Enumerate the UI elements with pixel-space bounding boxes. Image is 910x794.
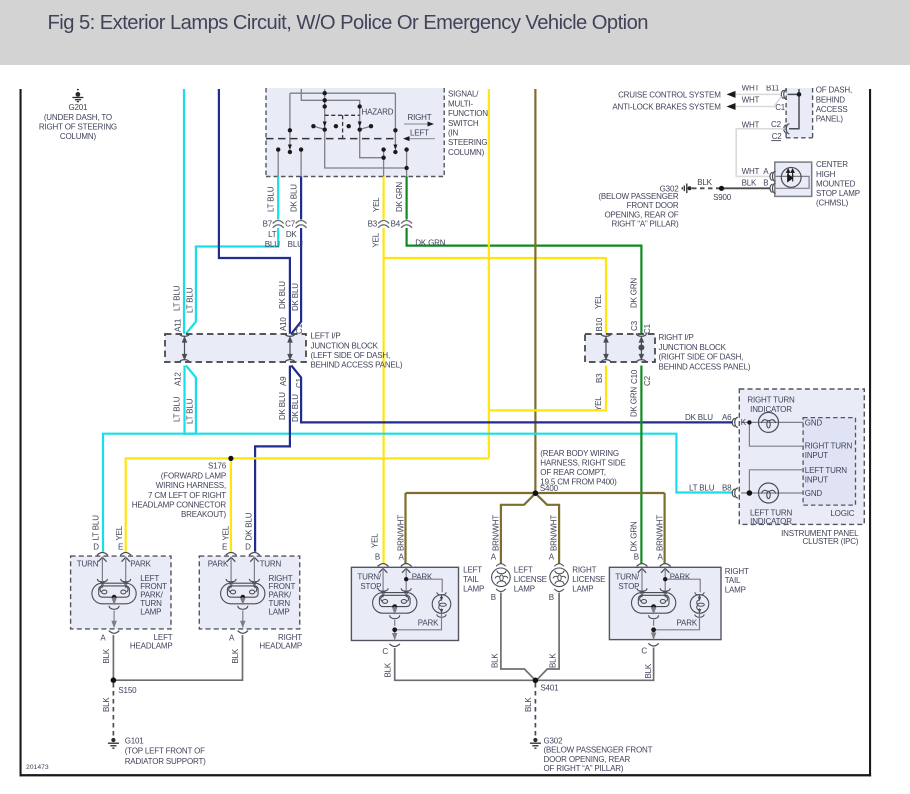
svg-text:(FORWARD LAMP: (FORWARD LAMP bbox=[161, 471, 226, 480]
svg-text:RIGHT OF STEERING: RIGHT OF STEERING bbox=[39, 122, 117, 131]
svg-text:(LEFT SIDE OF DASH,: (LEFT SIDE OF DASH, bbox=[311, 351, 391, 360]
svg-text:C1: C1 bbox=[643, 323, 652, 334]
svg-text:LT BLU: LT BLU bbox=[267, 186, 276, 212]
svg-text:STOP LAMP: STOP LAMP bbox=[816, 189, 860, 198]
svg-text:BLK: BLK bbox=[102, 697, 111, 712]
svg-text:S401: S401 bbox=[540, 683, 559, 692]
svg-text:DK BLU: DK BLU bbox=[291, 394, 300, 422]
svg-text:OF RIGHT “A” PILLAR): OF RIGHT “A” PILLAR) bbox=[544, 764, 624, 773]
svg-text:S900: S900 bbox=[713, 193, 732, 202]
svg-text:BLK: BLK bbox=[102, 648, 111, 663]
svg-text:TURN/: TURN/ bbox=[357, 572, 381, 581]
svg-text:OF DASH,: OF DASH, bbox=[816, 86, 852, 95]
svg-text:A12: A12 bbox=[173, 372, 182, 386]
svg-text:E: E bbox=[222, 542, 227, 551]
svg-text:BLK: BLK bbox=[384, 662, 393, 677]
svg-text:C7: C7 bbox=[285, 220, 296, 229]
svg-text:C2: C2 bbox=[771, 120, 782, 129]
svg-text:PANEL): PANEL) bbox=[816, 115, 844, 124]
svg-text:A: A bbox=[763, 167, 769, 176]
svg-text:FUNCTION: FUNCTION bbox=[448, 109, 488, 118]
svg-text:HEADLAMP: HEADLAMP bbox=[259, 642, 302, 651]
svg-text:LEFT TURN: LEFT TURN bbox=[805, 466, 847, 475]
svg-text:(IN: (IN bbox=[448, 129, 459, 138]
svg-text:PARK: PARK bbox=[208, 559, 229, 568]
svg-text:B: B bbox=[634, 552, 639, 561]
svg-text:LICENSE: LICENSE bbox=[514, 575, 547, 584]
svg-text:DK BLU: DK BLU bbox=[291, 283, 300, 311]
svg-text:A: A bbox=[100, 633, 106, 642]
svg-text:BEHIND ACCESS PANEL): BEHIND ACCESS PANEL) bbox=[311, 361, 403, 370]
svg-text:HAZARD: HAZARD bbox=[362, 107, 394, 116]
svg-text:GND: GND bbox=[805, 489, 823, 498]
svg-text:B3: B3 bbox=[595, 373, 604, 383]
svg-text:A10: A10 bbox=[279, 317, 288, 331]
svg-text:INPUT: INPUT bbox=[805, 475, 828, 484]
svg-text:LAMP: LAMP bbox=[572, 585, 593, 594]
svg-text:PARK: PARK bbox=[130, 559, 151, 568]
svg-text:ACCESS: ACCESS bbox=[816, 105, 848, 114]
svg-text:B4: B4 bbox=[391, 220, 401, 229]
svg-text:B7: B7 bbox=[263, 220, 273, 229]
svg-text:LT: LT bbox=[268, 230, 277, 239]
svg-text:HEADLAMP CONNECTOR: HEADLAMP CONNECTOR bbox=[132, 501, 227, 510]
svg-text:BEHIND: BEHIND bbox=[816, 95, 846, 104]
svg-text:HEADLAMP: HEADLAMP bbox=[130, 642, 173, 651]
svg-text:MOUNTED: MOUNTED bbox=[816, 179, 856, 188]
svg-text:YEL: YEL bbox=[594, 396, 603, 411]
svg-text:C1: C1 bbox=[295, 377, 304, 388]
svg-text:WHT: WHT bbox=[742, 167, 760, 176]
svg-text:YEL: YEL bbox=[221, 525, 230, 540]
svg-text:LICENSE: LICENSE bbox=[572, 575, 605, 584]
svg-text:PARK: PARK bbox=[412, 572, 433, 581]
svg-text:JUNCTION BLOCK: JUNCTION BLOCK bbox=[659, 343, 727, 352]
svg-text:LEFT: LEFT bbox=[514, 566, 533, 575]
svg-text:PARK: PARK bbox=[677, 619, 698, 628]
svg-text:DK BLU: DK BLU bbox=[244, 512, 253, 540]
svg-text:RIGHT: RIGHT bbox=[408, 113, 432, 122]
svg-text:DK BLU: DK BLU bbox=[290, 184, 299, 212]
svg-text:RIGHT: RIGHT bbox=[572, 566, 596, 575]
svg-text:RADIATOR SUPPORT): RADIATOR SUPPORT) bbox=[125, 757, 206, 766]
svg-text:A: A bbox=[491, 552, 497, 561]
svg-text:YEL: YEL bbox=[594, 294, 603, 309]
svg-text:C1: C1 bbox=[775, 103, 786, 112]
svg-text:LEFT: LEFT bbox=[463, 566, 482, 575]
svg-text:S400: S400 bbox=[540, 484, 559, 493]
svg-text:BLK: BLK bbox=[697, 178, 712, 187]
svg-text:BRN/WHT: BRN/WHT bbox=[655, 515, 664, 551]
svg-text:BLK: BLK bbox=[742, 179, 757, 188]
svg-text:LT BLU: LT BLU bbox=[172, 285, 181, 311]
svg-text:RIGHT TURN: RIGHT TURN bbox=[747, 395, 795, 404]
svg-text:K: K bbox=[741, 418, 747, 427]
svg-text:WIRING HARNESS,: WIRING HARNESS, bbox=[156, 481, 226, 490]
svg-text:B: B bbox=[763, 179, 768, 188]
svg-text:TURN/: TURN/ bbox=[615, 572, 639, 581]
svg-text:OF REAR COMPT,: OF REAR COMPT, bbox=[540, 468, 605, 477]
svg-text:INPUT: INPUT bbox=[805, 451, 828, 460]
svg-text:YEL: YEL bbox=[372, 197, 381, 212]
svg-text:LAMP: LAMP bbox=[514, 585, 535, 594]
svg-text:A: A bbox=[549, 552, 555, 561]
svg-text:B10: B10 bbox=[595, 317, 604, 331]
svg-text:LT BLU: LT BLU bbox=[185, 287, 194, 313]
svg-text:COLUMN): COLUMN) bbox=[60, 132, 97, 141]
svg-text:YEL: YEL bbox=[372, 232, 381, 247]
svg-text:LT BLU: LT BLU bbox=[689, 484, 715, 493]
svg-text:A: A bbox=[398, 552, 404, 561]
svg-text:HARNESS, RIGHT SIDE: HARNESS, RIGHT SIDE bbox=[540, 459, 625, 468]
svg-text:PARK: PARK bbox=[418, 619, 439, 628]
svg-text:BLU: BLU bbox=[265, 240, 280, 249]
svg-text:WHT: WHT bbox=[742, 121, 760, 130]
svg-text:WHT: WHT bbox=[742, 96, 760, 105]
svg-text:DK GRN: DK GRN bbox=[415, 238, 445, 247]
svg-text:DOOR OPENING, REAR: DOOR OPENING, REAR bbox=[544, 755, 631, 764]
svg-text:BLK: BLK bbox=[644, 663, 653, 678]
svg-text:DK: DK bbox=[286, 230, 298, 239]
svg-text:LT BLU: LT BLU bbox=[172, 396, 181, 422]
svg-text:STEERING: STEERING bbox=[448, 138, 487, 147]
svg-text:LOGIC: LOGIC bbox=[830, 509, 854, 518]
svg-text:CRUISE CONTROL SYSTEM: CRUISE CONTROL SYSTEM bbox=[618, 90, 721, 99]
svg-text:DK GRN: DK GRN bbox=[629, 521, 638, 551]
svg-text:DK GRN: DK GRN bbox=[395, 182, 404, 212]
svg-text:RIGHT I/P: RIGHT I/P bbox=[659, 333, 694, 342]
svg-text:B: B bbox=[549, 593, 554, 602]
svg-text:BLK: BLK bbox=[491, 653, 500, 668]
svg-text:LAMP: LAMP bbox=[140, 607, 161, 616]
svg-text:PARK: PARK bbox=[670, 572, 691, 581]
svg-text:DK GRN: DK GRN bbox=[630, 278, 639, 308]
svg-text:BLK: BLK bbox=[231, 648, 240, 663]
svg-text:FRONT DOOR: FRONT DOOR bbox=[627, 201, 679, 210]
svg-text:CENTER: CENTER bbox=[816, 160, 848, 169]
svg-text:TAIL: TAIL bbox=[463, 575, 479, 584]
svg-text:A: A bbox=[229, 633, 235, 642]
svg-text:LAMP: LAMP bbox=[269, 607, 290, 616]
svg-text:LEFT: LEFT bbox=[410, 128, 429, 137]
svg-text:D: D bbox=[245, 542, 251, 551]
svg-text:B: B bbox=[491, 593, 496, 602]
svg-text:BLK: BLK bbox=[549, 653, 558, 668]
svg-text:CLUSTER (IPC): CLUSTER (IPC) bbox=[803, 537, 859, 546]
svg-text:YEL: YEL bbox=[371, 533, 380, 548]
svg-text:HIGH: HIGH bbox=[816, 170, 836, 179]
svg-text:RIGHT “A” PILLAR): RIGHT “A” PILLAR) bbox=[611, 220, 679, 229]
svg-text:(BELOW PASSENGER FRONT: (BELOW PASSENGER FRONT bbox=[544, 746, 653, 755]
svg-text:INDICATOR: INDICATOR bbox=[750, 405, 792, 414]
svg-text:SWITCH: SWITCH bbox=[448, 119, 479, 128]
svg-text:BEHIND ACCESS PANEL): BEHIND ACCESS PANEL) bbox=[659, 362, 751, 371]
svg-text:BLK: BLK bbox=[524, 697, 533, 712]
svg-text:A: A bbox=[657, 552, 663, 561]
svg-text:(UNDER DASH, TO: (UNDER DASH, TO bbox=[44, 113, 112, 122]
svg-text:S176: S176 bbox=[208, 462, 227, 471]
svg-text:SIGNAL/: SIGNAL/ bbox=[448, 90, 479, 99]
svg-text:BRN/WHT: BRN/WHT bbox=[550, 515, 559, 551]
svg-text:TAIL: TAIL bbox=[725, 576, 741, 585]
svg-text:INDICATOR: INDICATOR bbox=[750, 517, 792, 526]
svg-text:G201: G201 bbox=[68, 103, 88, 112]
svg-text:Fig 5: Exterior Lamps Circuit,: Fig 5: Exterior Lamps Circuit, W/O Polic… bbox=[48, 12, 648, 34]
svg-text:JUNCTION BLOCK: JUNCTION BLOCK bbox=[311, 341, 379, 350]
svg-text:TURN: TURN bbox=[77, 559, 99, 568]
svg-text:C: C bbox=[382, 647, 388, 656]
svg-text:C10: C10 bbox=[630, 369, 639, 384]
svg-text:LEFT I/P: LEFT I/P bbox=[311, 332, 341, 341]
svg-text:ANTI-LOCK BRAKES SYSTEM: ANTI-LOCK BRAKES SYSTEM bbox=[612, 102, 721, 111]
svg-text:DK BLU: DK BLU bbox=[685, 413, 713, 422]
svg-text:C1: C1 bbox=[295, 323, 304, 334]
svg-text:E: E bbox=[118, 542, 123, 551]
svg-text:OPENING, REAR OF: OPENING, REAR OF bbox=[604, 210, 678, 219]
svg-text:COLUMN): COLUMN) bbox=[448, 148, 485, 157]
svg-text:DK GRN: DK GRN bbox=[630, 387, 639, 417]
svg-text:BRN/WHT: BRN/WHT bbox=[396, 515, 405, 551]
svg-text:BREAKOUT): BREAKOUT) bbox=[181, 510, 227, 519]
svg-text:(CHMSL): (CHMSL) bbox=[816, 199, 849, 208]
svg-text:(RIGHT SIDE OF DASH,: (RIGHT SIDE OF DASH, bbox=[659, 353, 744, 362]
svg-text:DK BLU: DK BLU bbox=[278, 281, 287, 309]
svg-text:TURN: TURN bbox=[260, 559, 282, 568]
svg-text:B3: B3 bbox=[368, 220, 378, 229]
svg-text:A6: A6 bbox=[722, 413, 732, 422]
svg-text:LAMP: LAMP bbox=[463, 585, 484, 594]
svg-text:(TOP LEFT FRONT OF: (TOP LEFT FRONT OF bbox=[125, 747, 205, 756]
svg-text:C3: C3 bbox=[630, 320, 639, 331]
svg-text:B: B bbox=[375, 552, 380, 561]
svg-text:MULTI-: MULTI- bbox=[448, 99, 474, 108]
svg-text:RIGHT: RIGHT bbox=[725, 567, 749, 576]
svg-text:D: D bbox=[93, 542, 99, 551]
svg-text:RIGHT TURN: RIGHT TURN bbox=[805, 441, 853, 450]
svg-text:201473: 201473 bbox=[26, 764, 49, 771]
svg-text:G101: G101 bbox=[125, 736, 145, 745]
svg-text:C: C bbox=[641, 646, 647, 655]
svg-text:C2: C2 bbox=[772, 132, 783, 141]
svg-text:B8: B8 bbox=[722, 484, 732, 493]
svg-text:C2: C2 bbox=[643, 375, 652, 386]
svg-text:A9: A9 bbox=[279, 376, 288, 386]
svg-text:GND: GND bbox=[805, 418, 823, 427]
svg-text:LAMP: LAMP bbox=[725, 586, 746, 595]
svg-text:LT BLU: LT BLU bbox=[92, 515, 101, 541]
svg-text:7 CM LEFT OF RIGHT: 7 CM LEFT OF RIGHT bbox=[148, 491, 226, 500]
svg-text:A11: A11 bbox=[173, 318, 182, 332]
svg-text:BLU: BLU bbox=[288, 240, 303, 249]
svg-text:G302: G302 bbox=[544, 736, 564, 745]
svg-text:DK BLU: DK BLU bbox=[278, 392, 287, 420]
svg-text:S150: S150 bbox=[118, 686, 137, 695]
svg-text:(BELOW PASSENGER: (BELOW PASSENGER bbox=[598, 192, 679, 201]
svg-text:(REAR BODY WIRING: (REAR BODY WIRING bbox=[540, 449, 619, 458]
svg-text:LT BLU: LT BLU bbox=[185, 398, 194, 424]
svg-text:YEL: YEL bbox=[115, 525, 124, 540]
svg-text:BRN/WHT: BRN/WHT bbox=[492, 515, 501, 551]
svg-text:STOP: STOP bbox=[618, 582, 639, 591]
